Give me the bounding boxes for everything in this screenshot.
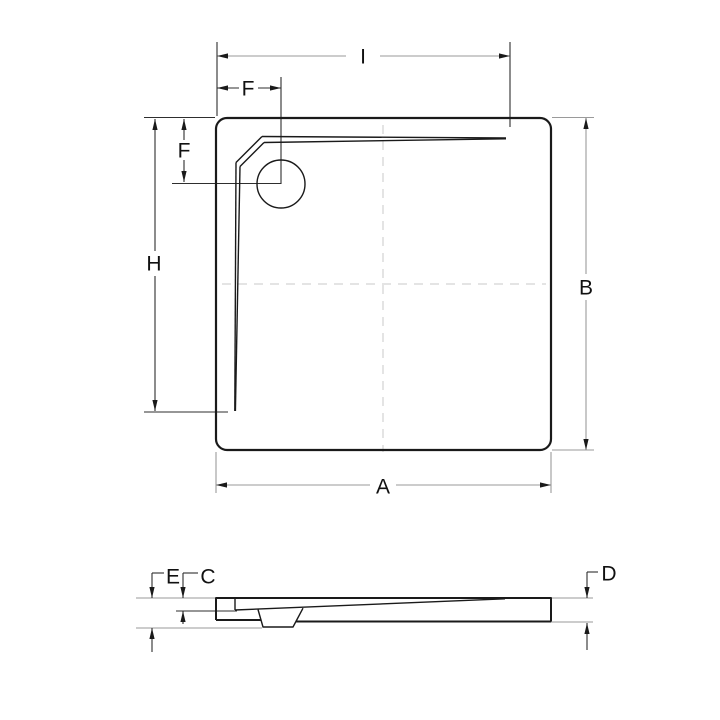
dim-label-H: H xyxy=(146,253,161,276)
arrow-B-down xyxy=(583,439,588,450)
arrow-C-down xyxy=(180,587,185,598)
groove-top-outer xyxy=(262,137,506,139)
dim-label-D: D xyxy=(601,563,616,586)
drain-sump-profile xyxy=(258,608,303,627)
light-dimension-lines-group xyxy=(136,56,594,628)
dim-label-C: C xyxy=(200,566,215,589)
arrow-A-left xyxy=(216,482,227,487)
dim-label-A: A xyxy=(376,476,390,499)
arrow-F-horizontal-left xyxy=(217,85,228,90)
dim-label-F-vertical: F xyxy=(178,140,191,163)
arrow-I-left xyxy=(217,53,228,58)
arrow-E-up xyxy=(149,628,154,639)
arrow-I-right xyxy=(499,53,510,58)
dim-label-I: I xyxy=(360,46,366,69)
technical-drawing-canvas: I F F H B A E C D xyxy=(0,0,720,720)
arrow-H-down xyxy=(152,400,157,411)
arrow-F-vertical-up xyxy=(181,119,186,130)
arrow-F-vertical-down xyxy=(181,171,186,182)
arrow-D-down xyxy=(584,587,589,598)
arrow-B-up xyxy=(583,118,588,129)
dim-label-F-horizontal: F xyxy=(242,78,255,101)
centerlines-group xyxy=(222,125,546,452)
dim-label-B: B xyxy=(579,277,593,300)
arrow-H-up xyxy=(152,119,157,130)
tray-profile-top-edge xyxy=(216,598,551,622)
arrow-F-horizontal-right xyxy=(270,85,281,90)
floor-slope-line xyxy=(235,599,505,610)
shower-tray-drawing: I F F H B A E C D xyxy=(0,0,720,720)
arrow-A-right xyxy=(540,482,551,487)
groove-top-inner xyxy=(264,139,506,143)
dark-dimension-lines-group xyxy=(144,42,598,652)
dim-label-E: E xyxy=(166,566,180,589)
arrow-C-up xyxy=(180,611,185,622)
arrow-E-down xyxy=(149,587,154,598)
arrow-D-up xyxy=(584,623,589,634)
groove-chamfer-outer xyxy=(236,137,262,163)
side-view-group xyxy=(216,598,551,627)
